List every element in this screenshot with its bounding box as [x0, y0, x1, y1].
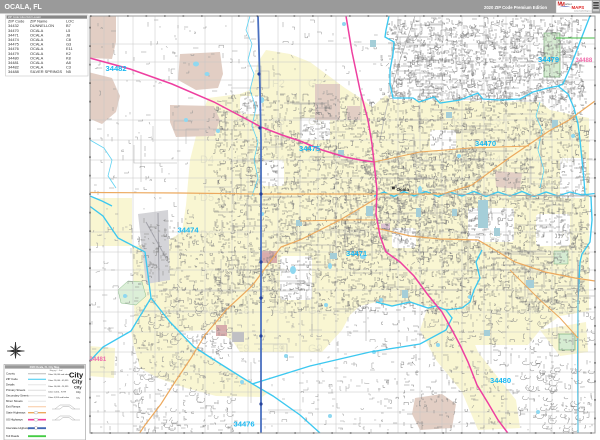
svg-text:34476: 34476	[234, 420, 255, 429]
svg-text:Cities 50,000 and above: Cities 50,000 and above	[48, 373, 71, 376]
svg-text:Exit Ramps: Exit Ramps	[6, 405, 21, 409]
svg-text:2020 ZIP Code Premium Edition: 2020 ZIP Code Premium Edition	[484, 5, 547, 10]
svg-text:34482: 34482	[106, 64, 127, 73]
svg-text:Toll Roads: Toll Roads	[6, 434, 20, 438]
svg-text:www.marketmaps.com: www.marketmaps.com	[574, 10, 594, 13]
svg-text:Ocala: Ocala	[397, 187, 410, 192]
svg-text:2020 Ocala, FL City Map: 2020 Ocala, FL City Map	[30, 365, 60, 369]
svg-text:34488: 34488	[8, 69, 19, 74]
svg-text:City: City	[76, 390, 81, 394]
svg-text:Minor Streets: Minor Streets	[6, 399, 23, 403]
svg-text:City: City	[69, 371, 84, 380]
svg-text:34481: 34481	[90, 357, 107, 363]
svg-text:K7: K7	[453, 267, 466, 279]
svg-text:34475: 34475	[299, 144, 321, 153]
svg-text:Cities 4,999 and below: Cities 4,999 and below	[48, 396, 70, 399]
svg-text:G8: G8	[308, 305, 323, 317]
svg-text:Cities 25,000 - 49,999: Cities 25,000 - 49,999	[48, 379, 69, 382]
svg-text:34480: 34480	[490, 376, 511, 385]
svg-text:34470: 34470	[475, 139, 496, 148]
svg-text:Cities 10,000 - 24,999: Cities 10,000 - 24,999	[48, 385, 69, 388]
svg-text:MAPS: MAPS	[572, 5, 585, 10]
svg-text:State Highways: State Highways	[6, 411, 26, 415]
svg-text:OCALA, FL: OCALA, FL	[5, 4, 43, 11]
svg-text:Secondary Streets: Secondary Streets	[6, 394, 30, 398]
svg-text:34474: 34474	[178, 226, 200, 235]
svg-text:34471: 34471	[346, 249, 368, 258]
svg-text:Details: Details	[6, 383, 15, 387]
svg-text:34488: 34488	[576, 58, 593, 64]
svg-text:US Highways: US Highways	[6, 418, 23, 422]
svg-text:SILVER SPRINGS: SILVER SPRINGS	[30, 69, 63, 74]
svg-text:Primary Streets: Primary Streets	[6, 388, 26, 392]
svg-text:34479: 34479	[538, 55, 559, 64]
svg-text:Map pg # - Grid: Map pg # - Grid	[50, 370, 62, 372]
svg-text:Cities 5,000 - 9,999: Cities 5,000 - 9,999	[48, 391, 67, 394]
svg-text:County: County	[6, 372, 15, 376]
svg-text:N5: N5	[66, 69, 71, 74]
svg-text:City: City	[74, 385, 82, 390]
svg-text:Interstate Highways: Interstate Highways	[6, 426, 31, 430]
svg-text:ZIP Code: ZIP Code	[6, 377, 18, 381]
